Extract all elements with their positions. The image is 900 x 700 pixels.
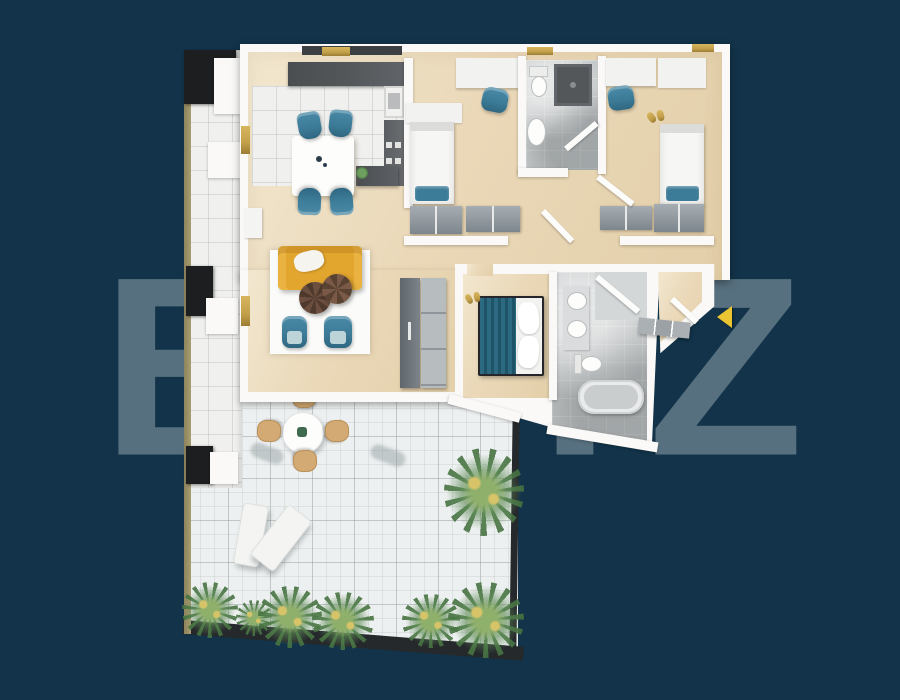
balcony-railing: [184, 50, 191, 634]
dining-chair: [298, 188, 322, 216]
hall-cabinet-handle: [408, 322, 411, 340]
bathroom-wall-right: [598, 56, 606, 174]
wall-stub: [214, 58, 240, 114]
wardrobe: [654, 204, 704, 232]
side-shelf: [244, 208, 262, 238]
shower-drain: [570, 82, 576, 88]
table-centerpiece: [297, 427, 307, 437]
table-decor: [316, 156, 322, 162]
bed-blanket: [480, 298, 518, 374]
bed-top-band: [660, 124, 704, 133]
stove-knob: [395, 158, 401, 164]
window-glazing: [302, 46, 402, 55]
wall-stub: [208, 142, 240, 178]
pillar: [186, 446, 213, 484]
wardrobe: [410, 206, 462, 234]
floor-plan: [0, 0, 900, 700]
bathroom-wall-left: [518, 56, 526, 174]
plant: [444, 448, 524, 536]
bedroom2-bottom-wall: [620, 236, 714, 245]
plant: [448, 582, 524, 658]
wardrobe: [466, 206, 520, 232]
armchair-seat: [330, 331, 346, 344]
bedroom1-bottom-wall: [404, 236, 508, 245]
bathroom-bottom-wall: [518, 168, 568, 177]
island-plant: [356, 167, 368, 179]
armchair-seat: [287, 331, 302, 344]
entrance-arrow: [717, 306, 732, 328]
window-frame: [692, 44, 714, 52]
balcony-door-frame: [241, 296, 250, 326]
wall-stub: [210, 452, 238, 484]
wardrobe: [600, 206, 652, 230]
outdoor-chair: [325, 420, 350, 443]
toilet: [581, 356, 602, 372]
master-door-gap: [467, 264, 493, 276]
coffee-table: [322, 274, 352, 304]
outdoor-chair: [293, 450, 318, 473]
stove-knob: [386, 158, 392, 164]
plant: [312, 592, 374, 650]
sink: [567, 292, 587, 310]
kitchen-appliance-inner: [388, 93, 400, 109]
desk-chair: [606, 84, 635, 111]
balcony-door-frame: [241, 126, 250, 154]
bed2-headboard-shelf: [658, 58, 706, 88]
sink: [567, 320, 587, 338]
window-frame: [322, 47, 350, 56]
outdoor-chair: [257, 420, 282, 443]
desk: [606, 58, 656, 86]
sink: [527, 118, 546, 146]
bed-top-band: [410, 122, 454, 131]
floor-plan-canvas: BLITZ: [0, 0, 900, 700]
stove-knob: [395, 142, 401, 148]
bed1-headboard-shelf: [406, 103, 462, 123]
toilet: [531, 76, 547, 97]
stove-knob: [386, 142, 392, 148]
wall-stub: [206, 298, 238, 334]
bathtub-basin: [584, 385, 638, 409]
bed-pillow: [415, 186, 449, 201]
hall-shelves: [421, 278, 446, 388]
bed-pillow: [666, 186, 699, 201]
desk: [456, 58, 522, 88]
table-decor: [323, 163, 327, 167]
dining-chair: [329, 187, 354, 216]
window-frame: [527, 47, 553, 55]
plant: [182, 582, 238, 638]
kitchen-counter: [288, 62, 406, 86]
master-divider-wall: [549, 272, 557, 400]
